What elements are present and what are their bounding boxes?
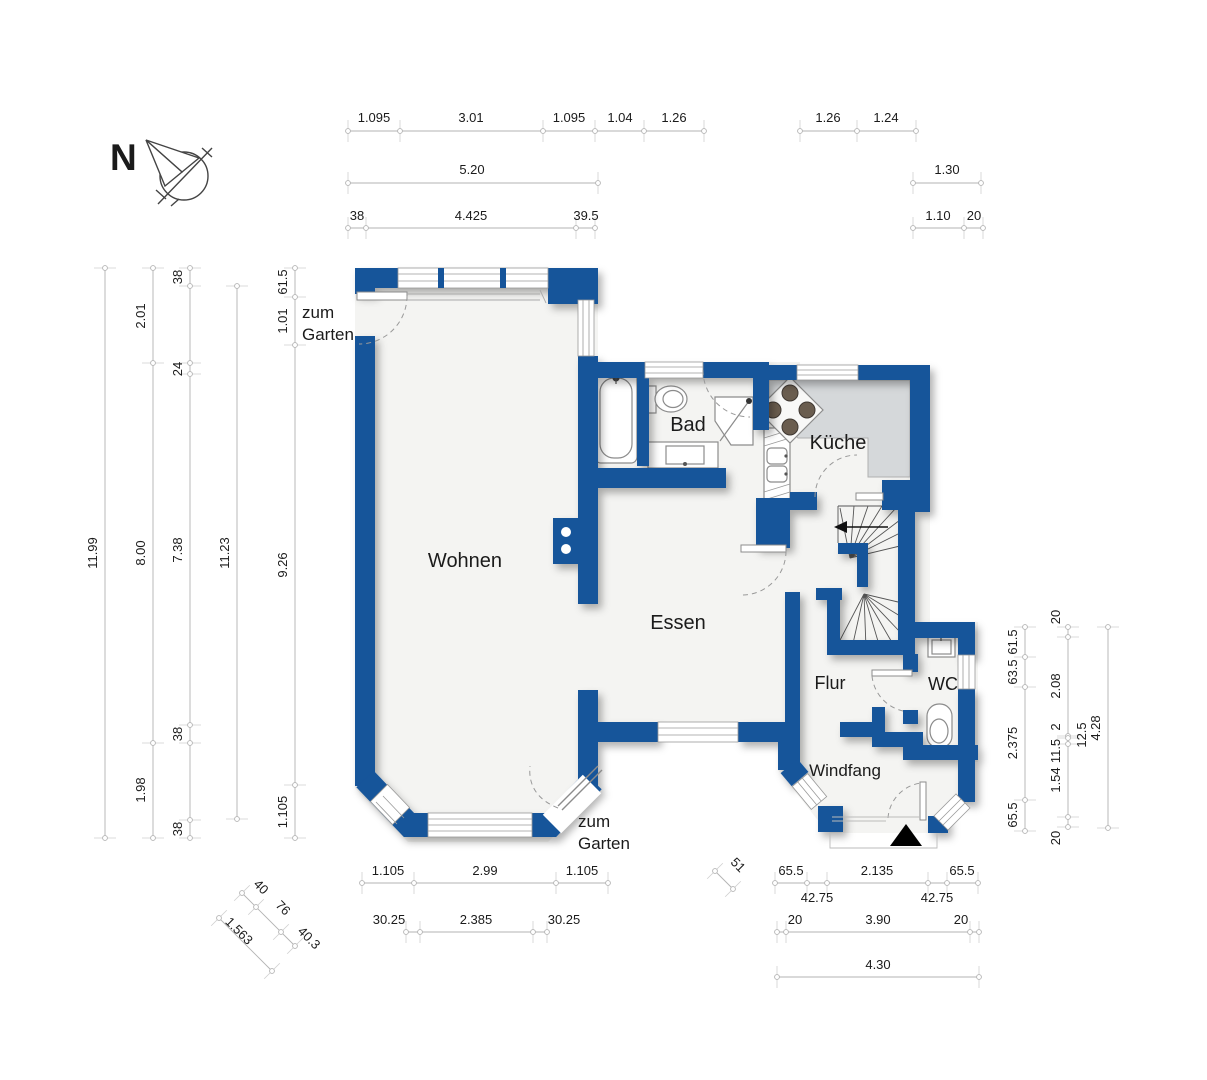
wall-segment — [637, 374, 649, 466]
dimension-tick — [404, 930, 409, 935]
dimension-tick — [798, 129, 803, 134]
window — [578, 300, 594, 356]
north-compass: N — [110, 137, 212, 206]
dimension-tick — [926, 881, 931, 886]
dimension-tick — [702, 129, 707, 134]
dimension-label: 39.5 — [573, 208, 598, 223]
dimension-label: 3.90 — [865, 912, 890, 927]
dimension-label: 2 — [1048, 723, 1063, 730]
dimension-tick — [554, 881, 559, 886]
wall-segment — [785, 592, 800, 725]
pillar-flue — [561, 544, 571, 554]
wall-segment — [355, 268, 375, 294]
garden-door-label: Garten — [302, 325, 354, 344]
window-mullion — [500, 268, 506, 288]
dimension-label: 1.095 — [358, 110, 391, 125]
dimension-line — [715, 871, 733, 889]
washbasin-wc-inner — [932, 640, 951, 654]
dimension-tick — [775, 975, 780, 980]
dimension-label: 4.28 — [1088, 715, 1103, 740]
dimension-tick — [293, 944, 298, 949]
room-label-windfang: Windfang — [809, 761, 881, 780]
dimension-label: 2.08 — [1048, 673, 1063, 698]
dimension-tick — [1106, 625, 1111, 630]
wall-segment — [818, 806, 843, 832]
dimension-tick — [346, 129, 351, 134]
dimension-tick — [825, 881, 830, 886]
dimension-tick — [293, 343, 298, 348]
dimension-label: 20 — [954, 912, 968, 927]
wall-pillar — [553, 518, 581, 564]
wall-segment — [827, 640, 915, 655]
dimension-label: 9.26 — [275, 552, 290, 577]
dimension-tick — [188, 818, 193, 823]
wall-segment — [738, 722, 800, 742]
dimension-label: 65.5 — [949, 863, 974, 878]
dimension-tick — [188, 723, 193, 728]
dimension-label: 20 — [788, 912, 802, 927]
wall-segment — [790, 492, 817, 510]
dimension-tick — [1106, 826, 1111, 831]
garden-door-label: Garten — [578, 834, 630, 853]
dimension-label: 40.3 — [295, 924, 324, 953]
dimension-label: 4.30 — [865, 957, 890, 972]
north-label: N — [110, 137, 137, 178]
dimension-label: 3.01 — [458, 110, 483, 125]
dimension-tick — [235, 284, 240, 289]
dimension-tick — [151, 361, 156, 366]
dimension-label: 1.095 — [553, 110, 586, 125]
dimension-label: 38 — [170, 270, 185, 284]
dimension-label: 20 — [1048, 610, 1063, 624]
dimension-label: 24 — [170, 362, 185, 376]
dimension-label: 30.25 — [373, 912, 406, 927]
dimension-label: 1.54 — [1048, 767, 1063, 792]
dimension-label: 5.20 — [459, 162, 484, 177]
dimension-label: 61.5 — [275, 269, 290, 294]
dimension-label: 7.38 — [170, 537, 185, 562]
dimension-tick — [962, 226, 967, 231]
door-leaf — [741, 545, 786, 552]
dimension-tick — [254, 905, 259, 910]
dimension-label: 61.5 — [1005, 629, 1020, 654]
toilet-bad-bowl-inner — [663, 391, 683, 408]
dimension-tick — [103, 836, 108, 841]
dimension-tick — [398, 129, 403, 134]
pillar-flue — [561, 527, 571, 537]
kitchen-sink-basin — [767, 466, 787, 482]
dimension-tick — [293, 295, 298, 300]
dimension-tick — [188, 836, 193, 841]
dimension-label: 1.563 — [222, 914, 256, 948]
wall-segment — [958, 622, 975, 657]
dimension-tick — [1066, 825, 1071, 830]
dimension-tick — [1023, 655, 1028, 660]
dimension-tick — [346, 226, 351, 231]
wall-segment — [882, 480, 910, 510]
room-label-bad: Bad — [670, 414, 706, 436]
dimension-tick — [1023, 685, 1028, 690]
dimension-tick — [976, 881, 981, 886]
door-leaf — [872, 670, 912, 676]
wall-windfang-left-corner — [789, 766, 800, 779]
wall-segment — [578, 468, 726, 488]
dimension-tick — [1023, 829, 1028, 834]
floor-plan-svg: N WohnenEssenKücheBadFlurWCWindfangzumGa… — [0, 0, 1207, 1080]
dimension-tick — [1023, 798, 1028, 803]
window — [645, 362, 703, 378]
dimension-tick — [151, 266, 156, 271]
garden-door-label: zum — [302, 303, 334, 322]
toilet-wc-inner — [930, 719, 948, 743]
room-label-flur: Flur — [815, 673, 846, 693]
dimension-label: 63.5 — [1005, 659, 1020, 684]
dimension-tick — [364, 226, 369, 231]
dimension-tick — [279, 930, 284, 935]
room-label-kueche: Küche — [810, 432, 867, 454]
dimension-label: 30.25 — [548, 912, 581, 927]
dimension-label: 11.5 — [1048, 739, 1063, 763]
wall-segment — [872, 707, 885, 747]
room-label-wohnen: Wohnen — [428, 550, 502, 572]
dimension-tick — [911, 181, 916, 186]
dimension-tick — [593, 129, 598, 134]
dimension-tick — [642, 129, 647, 134]
wall-segment — [958, 757, 975, 802]
dimension-tick — [606, 881, 611, 886]
dimension-tick — [773, 881, 778, 886]
dimension-tick — [805, 881, 810, 886]
dimension-label: 38 — [170, 727, 185, 741]
dimension-tick — [418, 930, 423, 935]
dimension-tick — [1066, 635, 1071, 640]
dimension-tick — [977, 975, 982, 980]
dimension-tick — [531, 930, 536, 935]
dimension-label: 11.99 — [85, 537, 100, 569]
wall-segment — [903, 710, 918, 724]
dimension-tick — [541, 129, 546, 134]
dimension-label: 65.5 — [1005, 802, 1020, 827]
wall-segment — [884, 732, 923, 747]
dimension-label: 12.5 — [1074, 722, 1089, 747]
dimension-tick — [545, 930, 550, 935]
door-leaf — [357, 292, 407, 300]
dimension-tick — [188, 741, 193, 746]
floor-plan-page: N WohnenEssenKücheBadFlurWCWindfangzumGa… — [0, 0, 1207, 1080]
dimension-tick — [596, 181, 601, 186]
kitchen-sink-tap — [784, 472, 787, 475]
dimension-tick — [1023, 625, 1028, 630]
dimension-tick — [151, 836, 156, 841]
wall-segment — [548, 268, 598, 304]
dimension-tick — [784, 930, 789, 935]
dimension-tick — [1066, 815, 1071, 820]
dimension-tick — [968, 930, 973, 935]
dimension-tick — [360, 881, 365, 886]
dimension-tick — [775, 930, 780, 935]
dimension-tick — [270, 969, 275, 974]
dimension-label: 1.30 — [934, 162, 959, 177]
washbasin-bad-inner — [666, 446, 704, 464]
dimension-label: 1.24 — [873, 110, 898, 125]
door-leaf — [920, 782, 926, 820]
dimension-label: 51 — [728, 854, 749, 875]
dimension-tick — [293, 836, 298, 841]
dimension-tick — [977, 930, 982, 935]
dimension-label: 20 — [967, 208, 981, 223]
wall-segment — [756, 498, 790, 548]
wall-segment — [958, 689, 975, 759]
dimension-tick — [188, 284, 193, 289]
dimension-tick — [240, 891, 245, 896]
kitchen-sink-tap — [784, 454, 787, 457]
dimension-label: 1.105 — [372, 863, 405, 878]
kitchen-sink-basin — [767, 448, 787, 464]
window-mullion — [438, 268, 444, 288]
dimension-tick — [188, 372, 193, 377]
door-leaf — [856, 493, 883, 500]
dimension-tick — [593, 226, 598, 231]
garden-door-label: zum — [578, 812, 610, 831]
dimension-label: 1.01 — [275, 308, 290, 333]
dimension-tick — [188, 266, 193, 271]
dimension-tick — [574, 226, 579, 231]
dimension-label: 1.105 — [275, 796, 290, 829]
dimension-label: 11.23 — [217, 537, 232, 569]
dimension-tick — [103, 266, 108, 271]
dimension-tick — [979, 181, 984, 186]
dimension-label: 20 — [1048, 831, 1063, 845]
wall-segment — [857, 547, 868, 587]
dimension-label: 8.00 — [133, 540, 148, 565]
dimension-tick — [1066, 736, 1071, 741]
dimension-label: 4.425 — [455, 208, 488, 223]
shower-drain — [746, 398, 752, 404]
dimension-tick — [981, 226, 986, 231]
dimension-label: 1.98 — [133, 777, 148, 802]
dimension-label: 40 — [251, 876, 272, 897]
dimension-tick — [1066, 742, 1071, 747]
wall-segment — [593, 722, 658, 742]
dimension-label: 2.375 — [1005, 727, 1020, 760]
dimension-label: 2.135 — [861, 863, 894, 878]
dimension-tick — [855, 129, 860, 134]
wall-segment — [910, 365, 930, 512]
dimension-label: 1.04 — [607, 110, 632, 125]
dimension-tick — [1066, 625, 1071, 630]
dimension-label: 42.75 — [921, 890, 954, 905]
dimension-tick — [731, 887, 736, 892]
dimension-tick — [713, 869, 718, 874]
washbasin-bad-tap — [683, 462, 687, 466]
dimension-tick — [412, 881, 417, 886]
window — [658, 722, 738, 742]
dimension-label: 65.5 — [778, 863, 803, 878]
dimension-tick — [945, 881, 950, 886]
wall-segment — [827, 598, 840, 646]
bathtub-inner — [600, 378, 632, 458]
dimension-label: 2.385 — [460, 912, 493, 927]
dimension-label: 38 — [350, 208, 364, 223]
window — [398, 268, 548, 288]
dimension-tick — [217, 916, 222, 921]
dimension-label: 2.01 — [133, 303, 148, 328]
dimension-tick — [188, 361, 193, 366]
room-label-essen: Essen — [650, 612, 706, 634]
room-label-wc: WC — [928, 674, 958, 694]
dimension-tick — [151, 741, 156, 746]
dimension-tick — [346, 181, 351, 186]
wall-segment — [903, 654, 918, 672]
window — [797, 365, 858, 380]
wall-segment — [355, 336, 375, 786]
dimension-label: 1.105 — [566, 863, 599, 878]
dimension-tick — [914, 129, 919, 134]
dimension-label: 38 — [170, 822, 185, 836]
dimension-label: 42.75 — [801, 890, 834, 905]
dimension-tick — [293, 266, 298, 271]
dimension-tick — [235, 817, 240, 822]
window — [958, 655, 975, 689]
dimension-label: 76 — [273, 897, 294, 918]
dimension-label: 1.26 — [815, 110, 840, 125]
dimension-label: 2.99 — [472, 863, 497, 878]
dimension-tick — [911, 226, 916, 231]
dimension-label: 1.10 — [925, 208, 950, 223]
dimension-tick — [293, 783, 298, 788]
dimension-label: 1.26 — [661, 110, 686, 125]
